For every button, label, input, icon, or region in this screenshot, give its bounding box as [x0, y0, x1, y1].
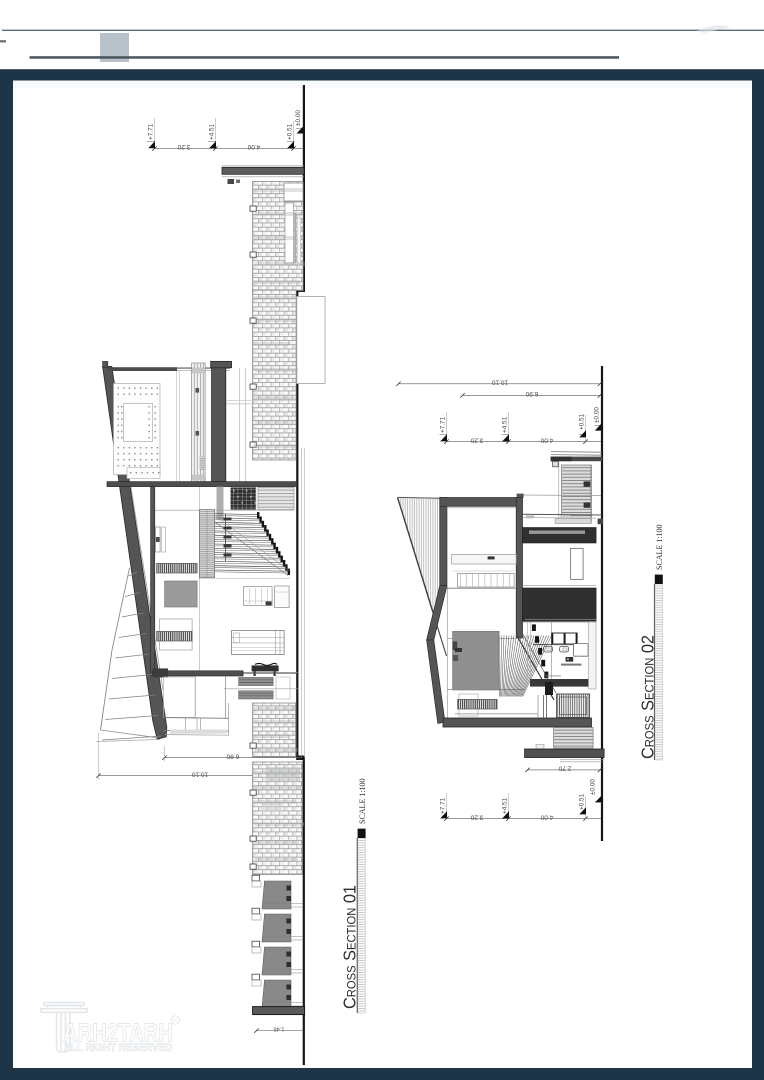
svg-text:6.90: 6.90	[525, 390, 538, 397]
svg-text:+0.51: +0.51	[579, 793, 586, 810]
svg-text:6.90: 6.90	[226, 752, 239, 759]
svg-text:+7.71: +7.71	[440, 797, 447, 814]
svg-text:4.00: 4.00	[540, 436, 553, 443]
svg-text:2.70: 2.70	[558, 765, 571, 772]
svg-text:10.10: 10.10	[191, 770, 208, 777]
svg-text:+0.51: +0.51	[287, 123, 294, 140]
svg-text:1.45: 1.45	[274, 1026, 285, 1032]
svg-text:+7.71: +7.71	[148, 123, 155, 140]
svg-text:3.20: 3.20	[470, 436, 483, 443]
svg-text:SCALE 1:100: SCALE 1:100	[358, 778, 367, 824]
svg-text:ALL RIGHT RESERVED: ALL RIGHT RESERVED	[64, 1042, 172, 1054]
svg-text:+0.51: +0.51	[579, 413, 586, 430]
svg-text:Cross Section 02: Cross Section 02	[638, 635, 658, 759]
svg-text:+7.71: +7.71	[440, 416, 447, 433]
svg-text:+4.51: +4.51	[502, 797, 509, 814]
svg-text:R: R	[173, 1019, 178, 1025]
svg-text:Cross Section 01: Cross Section 01	[340, 885, 360, 1009]
svg-text:+4.51: +4.51	[209, 123, 216, 140]
svg-text:4.00: 4.00	[247, 143, 260, 150]
svg-text:±0.00: ±0.00	[590, 779, 597, 795]
svg-text:4.00: 4.00	[540, 813, 553, 820]
svg-text:±0.00: ±0.00	[594, 407, 601, 423]
svg-text:3.20: 3.20	[470, 813, 483, 820]
svg-text:+4.51: +4.51	[502, 416, 509, 433]
svg-text:SCALE 1:100: SCALE 1:100	[655, 524, 664, 570]
svg-text:10.10: 10.10	[491, 379, 508, 386]
svg-text:±0.00: ±0.00	[295, 110, 302, 126]
svg-text:3.20: 3.20	[177, 143, 190, 150]
